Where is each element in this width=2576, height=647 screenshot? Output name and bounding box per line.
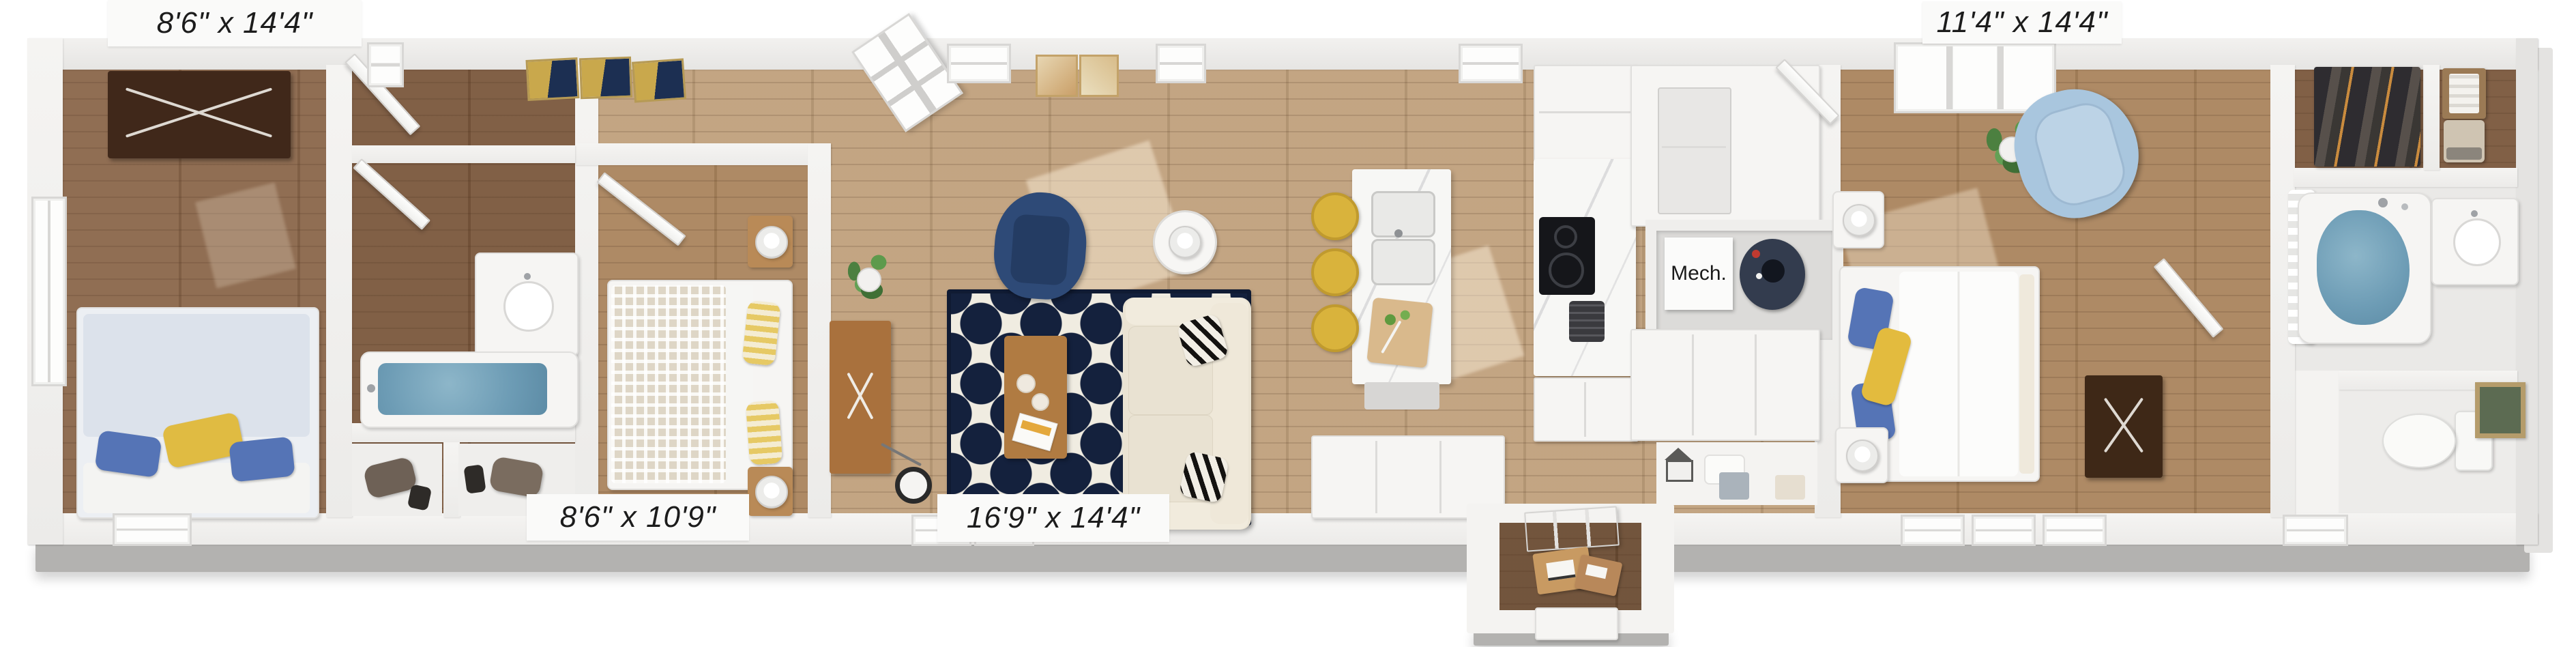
media-dresser — [108, 71, 291, 158]
cup — [1016, 374, 1036, 393]
window — [1901, 515, 1965, 546]
floor-plan: Mech. — [0, 0, 2576, 647]
sink-basin — [1371, 191, 1435, 238]
wall-closet-divider — [443, 442, 460, 517]
hanging-clothes — [2314, 67, 2420, 167]
dimension-tab-bedroom-left: 8'6" x 14'4" — [108, 0, 362, 46]
dimension-tab-bedroom-right: 11'4" x 14'4" — [1922, 1, 2122, 44]
pillow-yellow-striped — [742, 300, 780, 366]
tv-console — [830, 321, 891, 474]
lounge-chair-cushion — [2028, 97, 2131, 212]
shoes — [407, 484, 432, 511]
bar-stool-yellow — [1311, 304, 1359, 352]
kitchen-island — [1352, 169, 1451, 384]
vegetable — [1400, 310, 1410, 320]
building-outer-shadow — [35, 542, 2530, 572]
dimension-tab-bedroom-middle: 8'6" x 10'9" — [527, 494, 749, 541]
upper-cabinets — [1534, 65, 1637, 162]
kitchen-counter — [1534, 159, 1636, 376]
magazine-cover — [1021, 420, 1052, 436]
vestibule-door — [1524, 506, 1620, 551]
pillow-blue — [229, 436, 295, 482]
bed-left — [76, 307, 319, 519]
wall-top — [27, 38, 2538, 70]
sink-icon — [2453, 218, 2501, 266]
patterned-duvet — [611, 285, 726, 483]
water-heater — [1740, 239, 1805, 310]
pillow-yellow-striped — [746, 400, 782, 465]
table-lamp — [755, 226, 788, 259]
table-lamp — [755, 476, 788, 508]
wall-bed1-hall — [326, 65, 352, 517]
decor-shelf — [1656, 442, 1817, 505]
wall-art-beige — [1036, 55, 1078, 97]
sink-basin — [1371, 239, 1435, 285]
storage-box-towels — [2442, 68, 2486, 119]
wall-art-navy — [579, 57, 632, 100]
mech-unit: Mech. — [1665, 238, 1733, 310]
nightstand — [1835, 427, 1888, 483]
shipping-label — [1585, 564, 1608, 579]
island-base-shadow — [1364, 382, 1439, 409]
wall-hall-bed2 — [575, 65, 598, 517]
wall-art-navy — [525, 57, 579, 101]
potted-plant — [834, 240, 902, 314]
footboard — [2019, 274, 2034, 474]
faucet-icon — [367, 384, 375, 392]
closet-cubby — [352, 444, 442, 516]
valve-icon — [1752, 250, 1760, 258]
table-lamp — [1843, 204, 1875, 237]
dimension-tab-living-room: 16'9" x 14'4" — [937, 494, 1169, 542]
living-room-dimensions: 16'9" x 14'4" — [967, 501, 1140, 535]
window — [2283, 515, 2348, 546]
valve-icon — [1756, 273, 1762, 279]
decor-box — [1775, 475, 1805, 500]
wall-art-beige — [1079, 55, 1119, 97]
duvet — [1899, 272, 2018, 476]
bathroom-vanity — [475, 253, 579, 356]
cooktop — [1539, 217, 1595, 295]
wall-art-navy — [632, 58, 686, 102]
toilet — [2366, 407, 2493, 472]
bathtub-left — [360, 351, 579, 428]
sink-icon — [503, 281, 554, 332]
bathroom-vanity — [2431, 198, 2519, 285]
coffee-table — [1004, 336, 1067, 459]
magazine — [1012, 413, 1057, 451]
house-figurine-icon — [1666, 460, 1693, 482]
wall-bed2-top — [575, 143, 831, 165]
toilet-bowl — [2382, 414, 2456, 468]
entry-step — [1535, 607, 1618, 640]
table-lamp — [1169, 226, 1201, 259]
faucet-icon — [2471, 210, 2478, 217]
window — [367, 42, 404, 87]
bath-water — [378, 363, 547, 415]
armchair-cushion — [1010, 214, 1070, 285]
kitchen-lower-cabinets — [1630, 329, 1820, 441]
wall-closet-bath-divider — [2294, 168, 2517, 187]
base-cabinets — [1534, 377, 1639, 442]
cup — [1031, 393, 1049, 411]
wall-bottom — [27, 513, 2538, 545]
wall-closet-shelf-divider — [2423, 65, 2440, 170]
faucet-icon — [1394, 229, 1403, 238]
nightstand — [748, 467, 793, 516]
window — [1972, 515, 2036, 546]
window — [1156, 44, 1206, 83]
window — [31, 197, 67, 386]
dish-rack — [1569, 301, 1605, 342]
wall-right — [2516, 38, 2538, 545]
dresser — [2085, 375, 2163, 478]
bedroom-right-dimensions: 11'4" x 14'4" — [1936, 5, 2107, 40]
faucet-icon — [2378, 198, 2388, 207]
towels — [2449, 74, 2479, 113]
window — [947, 44, 1011, 83]
shoes — [463, 464, 486, 494]
vegetable — [1384, 314, 1396, 326]
storage-box — [2444, 120, 2485, 162]
refrigerator — [1658, 87, 1731, 214]
fridge-cabinet-block — [1630, 65, 1820, 227]
storage-box-base — [2446, 147, 2482, 160]
plant-pot — [857, 268, 881, 292]
duvet — [83, 314, 310, 437]
shower-head-icon — [2401, 203, 2408, 210]
table-lamp — [1846, 440, 1879, 472]
framed-picture — [2475, 382, 2526, 438]
bath-water — [2317, 210, 2410, 325]
heater-cap — [1761, 259, 1785, 283]
bar-stool-yellow — [1311, 248, 1359, 296]
bedroom-left-dimensions: 8'6" x 14'4" — [157, 6, 313, 40]
house-figurine-roof-icon — [1665, 448, 1692, 460]
cutting-board — [1366, 298, 1433, 369]
window — [1459, 44, 1523, 83]
window — [2043, 515, 2107, 546]
decor-box — [1719, 472, 1749, 500]
duffel-bag — [488, 456, 544, 498]
bar-stool-yellow — [1311, 192, 1359, 240]
shipping-label — [1546, 560, 1575, 581]
burner-icon — [1549, 253, 1584, 288]
nightstand — [748, 216, 793, 268]
burner-icon — [1554, 225, 1577, 248]
wall-bath-top — [352, 145, 575, 163]
bed-middle — [607, 280, 793, 490]
mech-room-label: Mech. — [1671, 262, 1727, 285]
bedroom-middle-dimensions: 8'6" x 10'9" — [560, 500, 716, 534]
window — [113, 513, 192, 546]
bathtub-right — [2298, 192, 2431, 344]
floor-lamp — [895, 467, 932, 504]
knife-icon — [1381, 320, 1401, 354]
nightstand — [1832, 191, 1884, 248]
wall-bed2-living — [808, 143, 831, 517]
faucet-icon — [524, 273, 531, 280]
side-table — [1153, 210, 1217, 274]
